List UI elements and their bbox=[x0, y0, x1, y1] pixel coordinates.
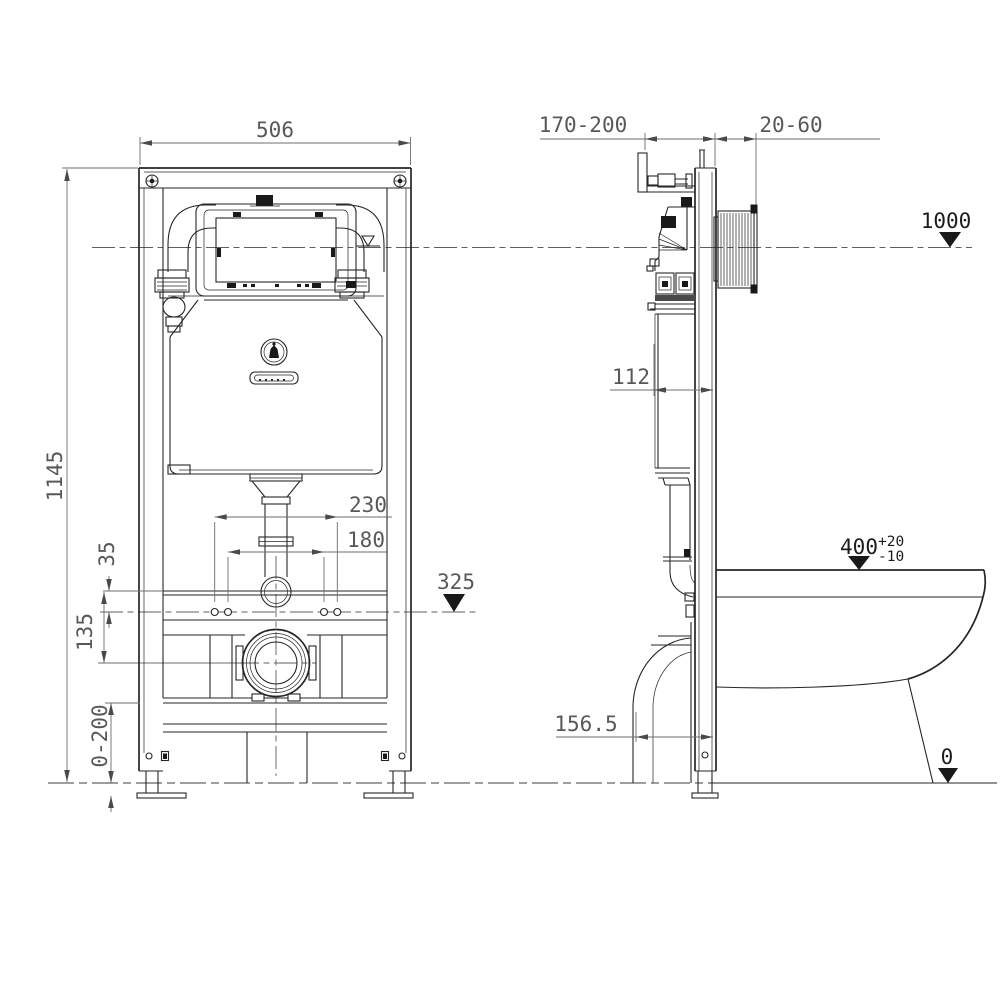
dim-fixing-outer-label: 230 bbox=[349, 493, 387, 517]
access-box bbox=[714, 205, 758, 294]
fixing-hole bbox=[211, 609, 218, 616]
level-triangle-0 bbox=[938, 768, 958, 783]
wall-bracket bbox=[638, 153, 695, 192]
dim-width-label: 506 bbox=[256, 118, 294, 142]
level-flush-axis-label: 325 bbox=[437, 570, 475, 594]
corner-screw-right bbox=[394, 175, 406, 187]
cistern-front bbox=[155, 195, 384, 474]
front-feet bbox=[137, 752, 413, 799]
dim-height-label: 1145 bbox=[43, 451, 67, 502]
dim-drain-setback-label: 156.5 bbox=[554, 712, 617, 736]
cistern-side bbox=[647, 197, 695, 617]
fixing-hole bbox=[334, 609, 341, 616]
technical-drawing-page: 506 1145 230 180 35 135 0-200 bbox=[0, 0, 1001, 1001]
fill-valve bbox=[155, 270, 189, 332]
dim-drain-offset-label: 135 bbox=[73, 613, 97, 651]
corner-screw-left bbox=[146, 175, 158, 187]
waste-elbow bbox=[633, 622, 691, 783]
dim-rail-offset-label: 35 bbox=[95, 541, 119, 566]
dim-bowl-tol-plus-label: +20 bbox=[878, 534, 904, 550]
front-frame bbox=[139, 168, 411, 783]
level-triangle-325 bbox=[443, 594, 465, 612]
dim-bowl-tol-minus-label: -10 bbox=[878, 549, 904, 565]
dim-frame-depth-label: 112 bbox=[612, 365, 650, 389]
dim-bowl-height-label: 400 bbox=[840, 535, 878, 559]
flush-emblem bbox=[261, 339, 287, 365]
water-level-mark bbox=[356, 236, 380, 246]
level-top-label: 1000 bbox=[921, 209, 972, 233]
front-view: 506 1145 230 180 35 135 0-200 bbox=[43, 118, 475, 812]
service-slot bbox=[250, 372, 298, 384]
dim-wall-finish-label: 20-60 bbox=[759, 113, 822, 137]
fixing-hole bbox=[321, 609, 328, 616]
side-view: 170-200 20-60 1000 112 156.5 400 +20 -10… bbox=[539, 113, 986, 798]
fixing-hole bbox=[225, 609, 232, 616]
level-triangle-1000 bbox=[939, 232, 961, 248]
right-clamp bbox=[335, 270, 369, 298]
toilet-carrier-frame-drawing: 506 1145 230 180 35 135 0-200 bbox=[0, 0, 1001, 1001]
tank-clip bbox=[168, 465, 190, 474]
top-fitting bbox=[256, 195, 273, 206]
level-floor-label: 0 bbox=[941, 745, 954, 769]
dim-foot-range-label: 0-200 bbox=[88, 704, 112, 767]
dim-fixing-inner-label: 180 bbox=[347, 528, 385, 552]
dim-bracket-range-label: 170-200 bbox=[539, 113, 628, 137]
